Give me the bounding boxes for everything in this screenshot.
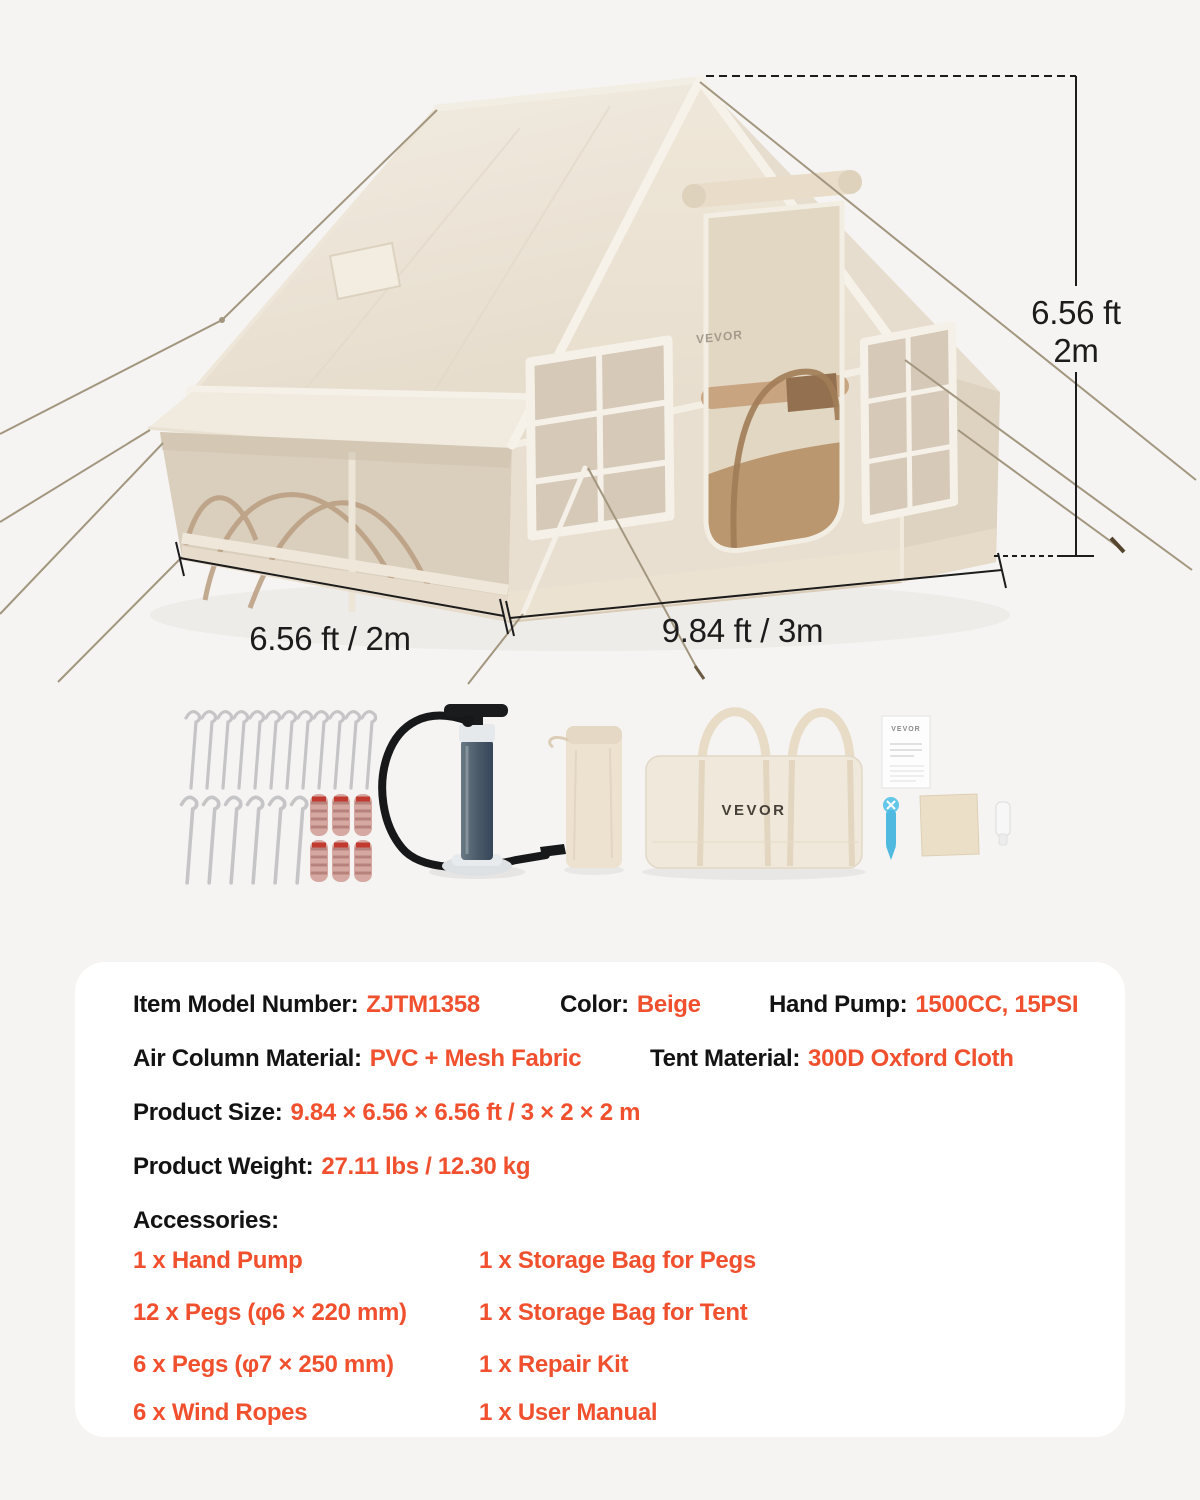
tent-door — [682, 170, 862, 550]
product-infographic-page: 6.56 ft 2m 6.56 ft / 2m 9.84 ft / 3m VEV… — [0, 0, 1200, 1500]
height-dimension-label: 6.56 ft 2m — [1008, 294, 1144, 370]
accessory-storage-bag-tent: 1 x Storage Bag for Tent — [479, 1300, 747, 1326]
spec-label: Product Size: — [133, 1099, 282, 1126]
spec-label: Product Weight: — [133, 1153, 313, 1180]
pegs-12 — [186, 712, 376, 788]
spec-label: Color: — [560, 991, 629, 1018]
accessory-wind-ropes: 6 x Wind Ropes — [133, 1400, 307, 1426]
width-dimension-label: 6.56 ft / 2m — [225, 620, 435, 658]
spec-card: Item Model Number:ZJTM1358 Color:Beige H… — [75, 962, 1125, 1437]
spec-value: 300D Oxford Cloth — [808, 1045, 1014, 1072]
hand-pump — [382, 704, 566, 879]
spec-color: Color:Beige — [560, 992, 701, 1018]
front-left-window — [530, 340, 670, 536]
manual-brand-logo: VEVOR — [882, 726, 930, 733]
spec-air-column-material: Air Column Material:PVC + Mesh Fabric — [133, 1046, 581, 1072]
spec-value: ZJTM1358 — [366, 991, 480, 1018]
accessory-pegs-6: 6 x Pegs (φ7 × 250 mm) — [133, 1352, 394, 1378]
spec-label: Hand Pump: — [769, 991, 907, 1018]
accessory-repair-kit: 1 x Repair Kit — [479, 1352, 628, 1378]
spec-value: PVC + Mesh Fabric — [370, 1045, 582, 1072]
length-dimension-label: 9.84 ft / 3m — [630, 612, 855, 650]
bag-handle — [792, 712, 850, 760]
bag-brand-logo: VEVOR — [694, 802, 814, 819]
repair-valve-tool — [883, 797, 899, 860]
spec-model-number: Item Model Number:ZJTM1358 — [133, 992, 480, 1018]
spec-label: Item Model Number: — [133, 991, 358, 1018]
spec-tent-material: Tent Material:300D Oxford Cloth — [650, 1046, 1014, 1072]
spec-hand-pump: Hand Pump:1500CC, 15PSI — [769, 992, 1078, 1018]
spec-product-size: Product Size:9.84 × 6.56 × 6.56 ft / 3 ×… — [133, 1100, 640, 1126]
product-photo-illustration — [0, 0, 1200, 940]
accessory-pegs-12: 12 x Pegs (φ6 × 220 mm) — [133, 1300, 407, 1326]
height-feet: 6.56 ft — [1008, 294, 1144, 332]
front-right-window — [864, 325, 954, 520]
spec-value: 9.84 × 6.56 × 6.56 ft / 3 × 2 × 2 m — [290, 1099, 640, 1126]
glue-tube — [996, 802, 1010, 845]
pegs-6 — [182, 797, 307, 883]
accessory-hand-pump: 1 x Hand Pump — [133, 1248, 302, 1274]
spec-product-weight: Product Weight:27.11 lbs / 12.30 kg — [133, 1154, 530, 1180]
accessory-storage-bag-pegs: 1 x Storage Bag for Pegs — [479, 1248, 756, 1274]
tent-storage-bag — [642, 712, 866, 880]
height-meters: 2m — [1008, 332, 1144, 370]
tent — [148, 80, 1000, 622]
bag-handle — [702, 712, 766, 760]
spec-value: Beige — [637, 991, 701, 1018]
spec-value: 1500CC, 15PSI — [915, 991, 1078, 1018]
wind-ropes — [310, 794, 372, 882]
spec-value: 27.11 lbs / 12.30 kg — [321, 1153, 530, 1180]
repair-patch — [920, 794, 979, 856]
spec-label: Air Column Material: — [133, 1045, 362, 1072]
accessories-title: Accessories: — [133, 1208, 279, 1234]
spec-label: Tent Material: — [650, 1045, 800, 1072]
accessory-user-manual: 1 x User Manual — [479, 1400, 657, 1426]
